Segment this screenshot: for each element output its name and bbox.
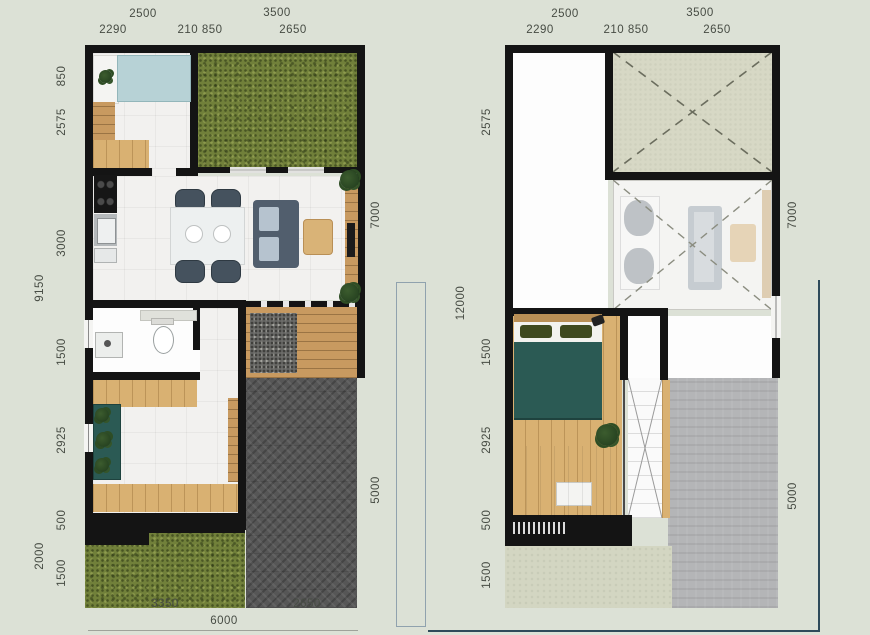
wall bbox=[85, 533, 149, 545]
roof-slab bbox=[668, 378, 778, 608]
coffee-table bbox=[303, 219, 333, 255]
boundary-strip bbox=[396, 282, 426, 627]
dimension-label: 2000 bbox=[34, 542, 46, 570]
dimension-label: 2290 bbox=[99, 24, 127, 36]
stove bbox=[94, 175, 117, 213]
wall bbox=[85, 45, 365, 53]
bed-headboard bbox=[514, 314, 602, 322]
dimension-label: 2650 bbox=[279, 24, 307, 36]
master-bed bbox=[514, 342, 602, 420]
wardrobe bbox=[93, 380, 197, 407]
dimension-label: 2575 bbox=[481, 108, 493, 136]
potted-plant bbox=[340, 283, 359, 302]
dimension-label: 2500 bbox=[551, 8, 579, 20]
boundary-line-vertical bbox=[818, 280, 820, 632]
dimension-label: 5000 bbox=[787, 482, 799, 510]
wall bbox=[357, 45, 365, 378]
potted-plant bbox=[96, 432, 111, 447]
dining-table bbox=[170, 207, 245, 265]
wall bbox=[620, 308, 628, 380]
dimension-line bbox=[88, 630, 358, 631]
boundary-line-horizontal bbox=[428, 630, 820, 632]
pillow bbox=[560, 325, 592, 338]
dimension-label: 3000 bbox=[56, 229, 68, 257]
dimension-label: 5000 bbox=[370, 476, 382, 504]
wall-with-windows bbox=[245, 301, 357, 307]
wall bbox=[605, 172, 780, 180]
dimension-label: 2575 bbox=[56, 108, 68, 136]
window bbox=[84, 424, 93, 452]
dimension-label: 1500 bbox=[481, 561, 493, 589]
front-garden bbox=[198, 53, 357, 167]
shelf bbox=[228, 398, 238, 482]
potted-plant bbox=[340, 170, 359, 189]
dimension-label: 2650 bbox=[703, 24, 731, 36]
door-opening bbox=[193, 350, 200, 372]
wall bbox=[198, 167, 365, 173]
window bbox=[230, 167, 266, 173]
dimension-label: 3350 bbox=[151, 598, 179, 610]
dimension-label: 1500 bbox=[56, 559, 68, 587]
rear-deck bbox=[93, 484, 238, 512]
potted-plant bbox=[95, 458, 109, 472]
dimension-label: 210 850 bbox=[603, 24, 648, 36]
upper-room-floor bbox=[512, 52, 608, 310]
stair-side-strip bbox=[662, 380, 670, 518]
dimension-label: 2925 bbox=[56, 426, 68, 454]
place-setting bbox=[213, 225, 231, 243]
window bbox=[288, 167, 324, 173]
carport-paving bbox=[246, 378, 357, 608]
dimension-label: 3500 bbox=[686, 7, 714, 19]
balcony-roof-slab bbox=[505, 546, 672, 608]
sofa-cushion bbox=[259, 207, 279, 231]
potted-plant bbox=[95, 408, 109, 422]
place-setting bbox=[185, 225, 203, 243]
dimension-label: 2500 bbox=[129, 8, 157, 20]
wall bbox=[605, 45, 613, 180]
basin-faucet bbox=[104, 340, 111, 347]
dimension-label: 9150 bbox=[34, 274, 46, 302]
wall bbox=[238, 300, 246, 530]
dimension-label: 3500 bbox=[263, 7, 291, 19]
sofa-cushion bbox=[259, 237, 279, 261]
dimension-label: 1500 bbox=[481, 338, 493, 366]
floor-plan-canvas: 2500 3500 2290 210 850 2650 850 2575 300… bbox=[0, 0, 870, 635]
potted-plant bbox=[99, 70, 112, 83]
void-x-mark bbox=[613, 52, 772, 172]
dimension-label: 12000 bbox=[455, 286, 467, 320]
dimension-label: 2925 bbox=[481, 426, 493, 454]
dimension-label: 1500 bbox=[56, 338, 68, 366]
dimension-label: 500 bbox=[481, 510, 493, 531]
dimension-label: 7000 bbox=[787, 201, 799, 229]
upper-hall-floor bbox=[668, 316, 772, 378]
door-opening bbox=[152, 168, 176, 176]
vent-grille bbox=[513, 522, 568, 534]
wall bbox=[190, 45, 198, 175]
toilet-tank bbox=[151, 318, 174, 325]
dimension-label: 2650 bbox=[293, 598, 321, 610]
window bbox=[771, 296, 781, 338]
window bbox=[84, 320, 93, 348]
fridge bbox=[94, 248, 117, 263]
floor-planks bbox=[512, 446, 622, 518]
single-bed bbox=[117, 55, 191, 102]
toilet bbox=[153, 326, 174, 354]
stair-x-mark bbox=[628, 378, 662, 518]
wall bbox=[505, 45, 780, 53]
potted-plant bbox=[596, 424, 618, 446]
dimension-label: 7000 bbox=[370, 201, 382, 229]
wall bbox=[660, 308, 668, 380]
dimension-label: 2290 bbox=[526, 24, 554, 36]
dining-chair bbox=[211, 260, 241, 283]
wall bbox=[85, 513, 245, 533]
dining-chair bbox=[175, 260, 205, 283]
pillow bbox=[520, 325, 552, 338]
dimension-label: 210 850 bbox=[177, 24, 222, 36]
gravel-patch bbox=[250, 313, 297, 373]
kitchen-sink bbox=[97, 218, 116, 244]
void-x-mark bbox=[613, 180, 772, 310]
stair-partition bbox=[623, 380, 625, 518]
desk bbox=[93, 140, 149, 168]
dimension-label: 850 bbox=[56, 66, 68, 87]
dimension-label: 6000 bbox=[210, 615, 238, 627]
wall bbox=[85, 372, 200, 380]
wall bbox=[85, 300, 245, 308]
dimension-label: 500 bbox=[56, 510, 68, 531]
tv bbox=[347, 223, 355, 257]
